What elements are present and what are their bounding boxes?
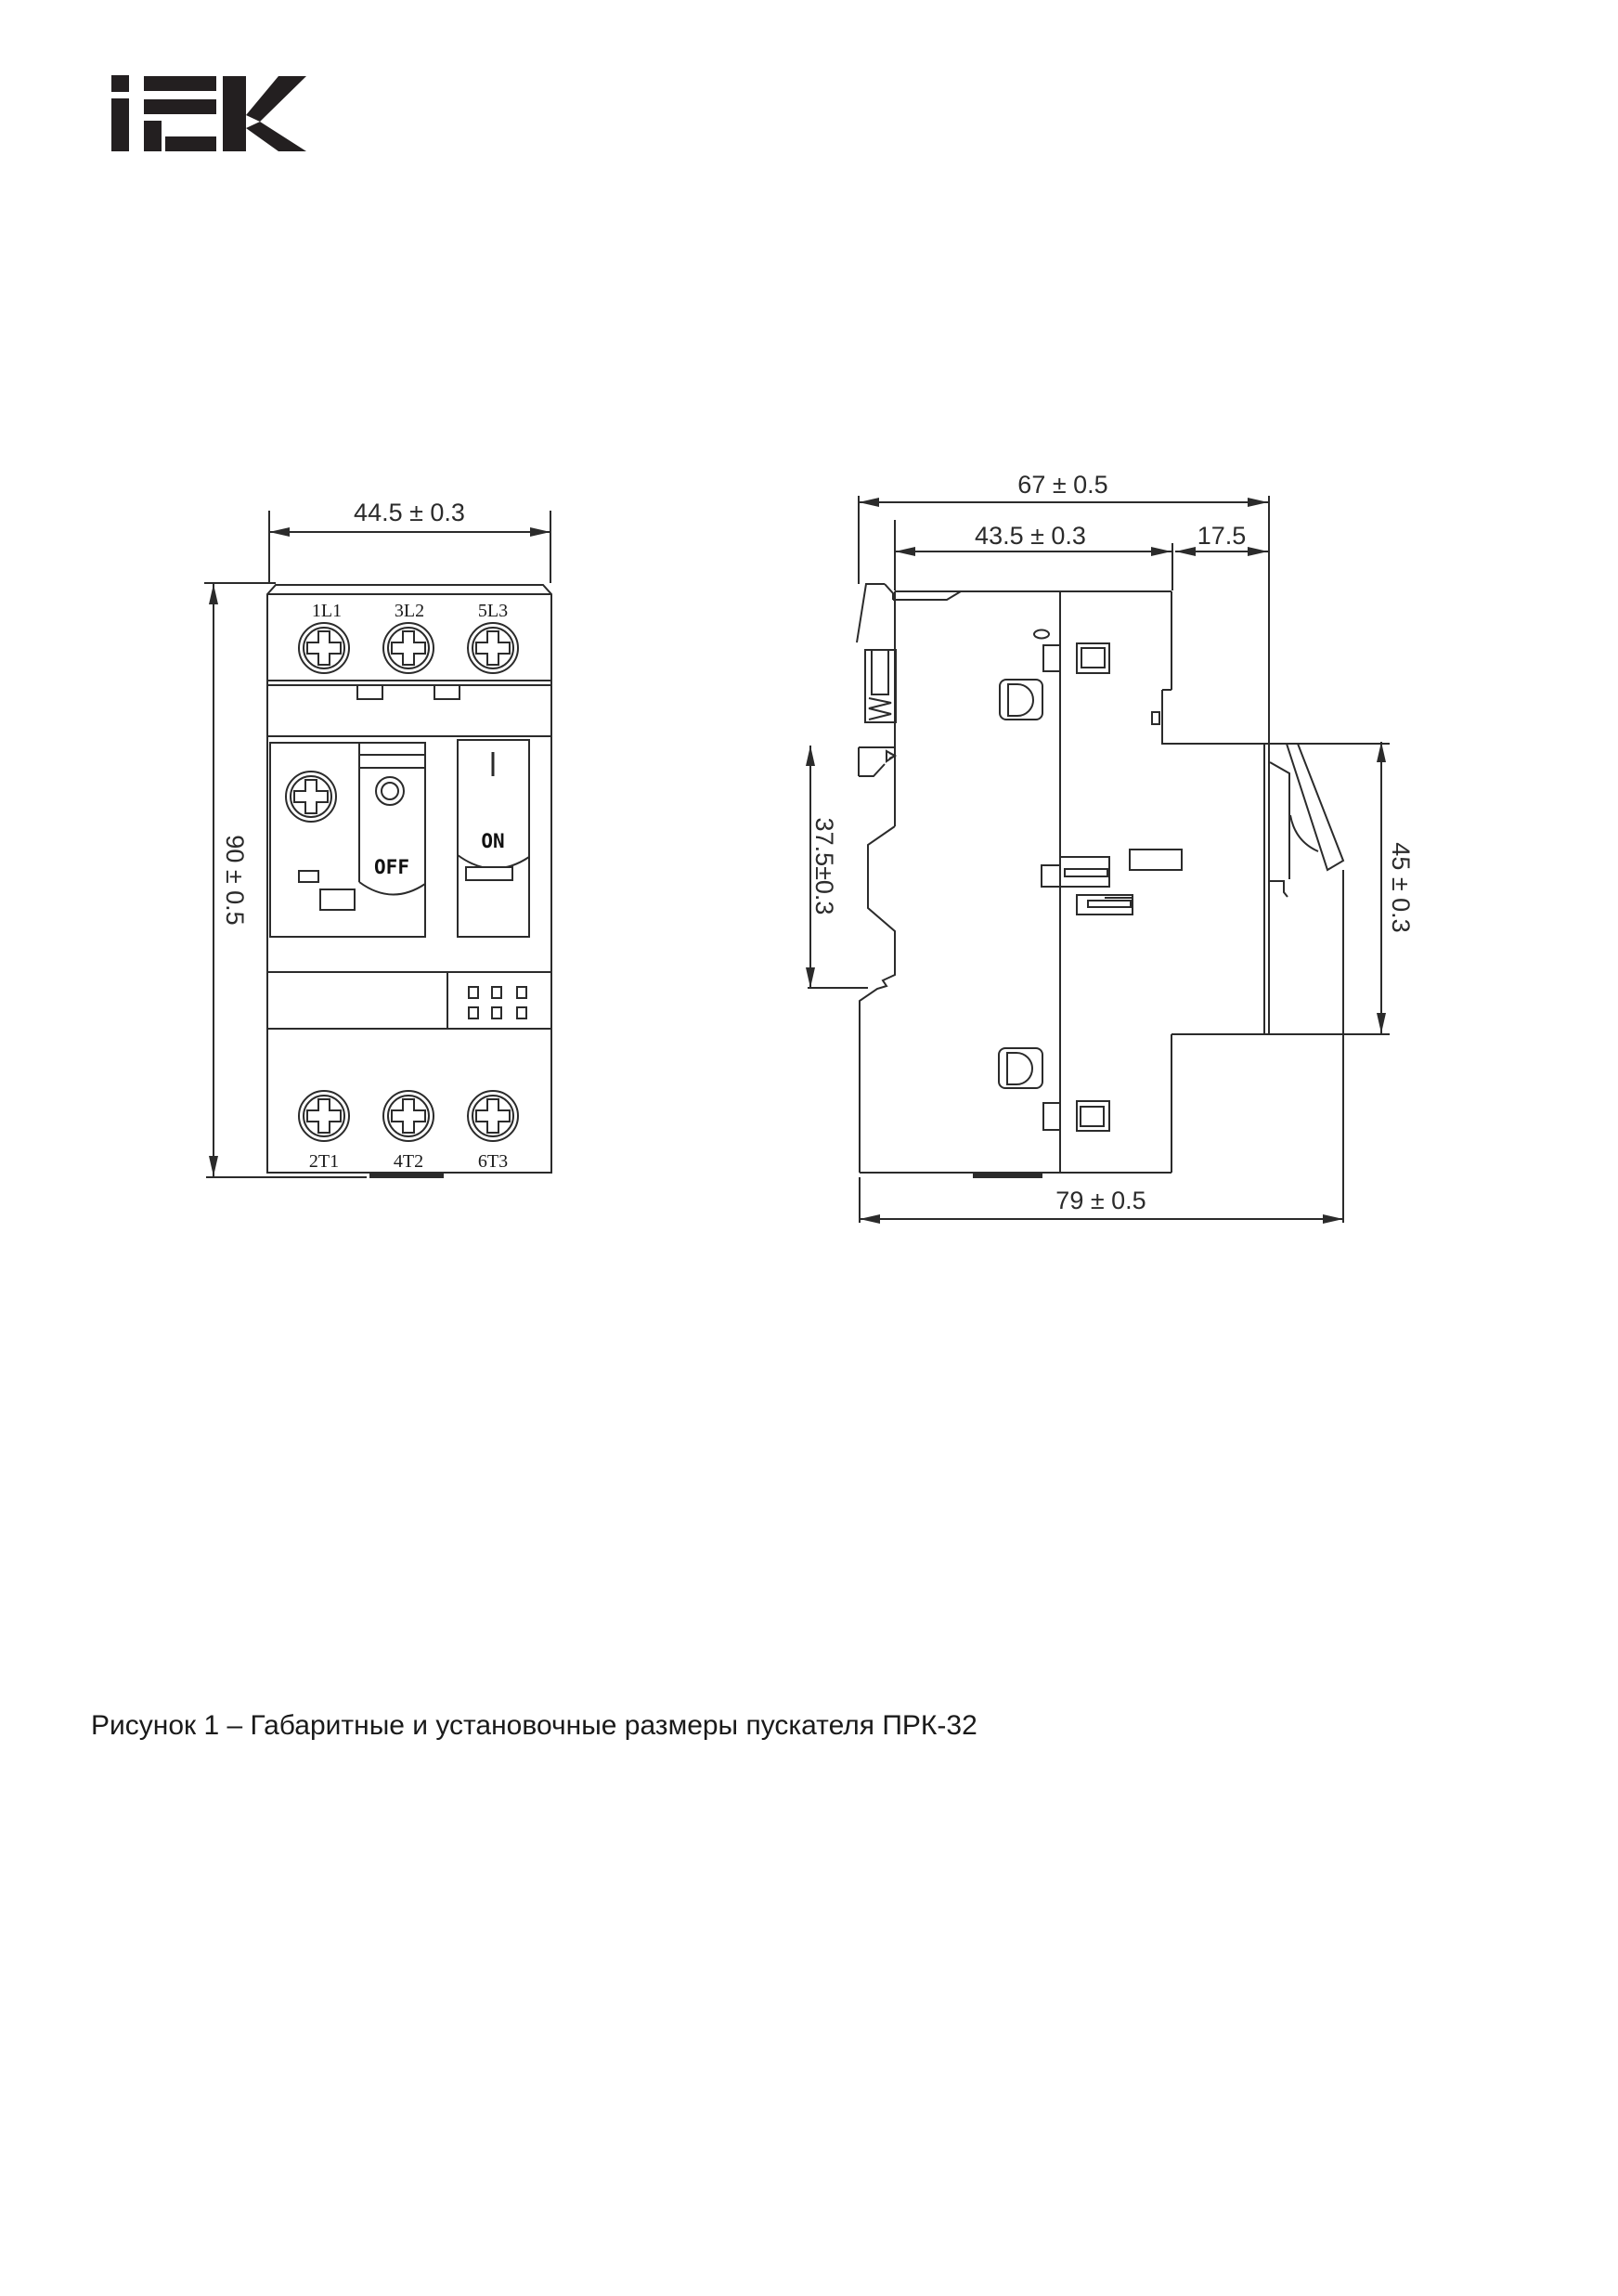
iek-logo	[111, 75, 306, 151]
screw-4T2	[383, 1091, 434, 1141]
side-view-body	[857, 584, 1390, 1178]
side-front-height-dimension: 45 ± 0.3	[1387, 842, 1415, 932]
terminal-label: 1L1	[312, 601, 342, 621]
test-button-circle	[376, 777, 404, 805]
foot	[973, 1173, 1042, 1178]
front-view-body	[267, 585, 551, 1178]
front-height-dimension: 90 ± 0.5	[221, 835, 249, 925]
side-front-depth-dimension: 17.5	[1197, 522, 1247, 550]
terminal-label: 2T1	[309, 1151, 339, 1172]
terminal-label: 3L2	[395, 601, 424, 621]
front-view: 1L1 3L2 5L3 2T1 4T2 6T3 OFF ON 44.5 ± 0.…	[204, 499, 551, 1178]
din-tab	[369, 1173, 444, 1178]
terminal-label: 6T3	[478, 1151, 508, 1172]
toggle-lever	[1287, 744, 1343, 870]
figure-caption: Рисунок 1 – Габаритные и установочные ра…	[91, 1710, 977, 1741]
side-view: 67 ± 0.5 43.5 ± 0.3 17.5 37.5±0.3 45 ± 0…	[806, 471, 1415, 1224]
adjustment-screw	[286, 772, 336, 822]
side-back-height-dimension: 37.5±0.3	[810, 818, 838, 915]
side-total-depth-dimension: 67 ± 0.5	[1017, 471, 1107, 499]
side-body-depth-dimension: 43.5 ± 0.3	[975, 522, 1086, 550]
front-width-dimension: 44.5 ± 0.3	[354, 499, 465, 526]
screw-6T3	[468, 1091, 518, 1141]
screw-2T1	[299, 1091, 349, 1141]
side-total-length-dimension: 79 ± 0.5	[1055, 1187, 1146, 1214]
terminal-label: 5L3	[478, 601, 508, 621]
screw-5L3	[468, 623, 518, 673]
side-view-dimension-lines	[806, 496, 1386, 1224]
screw-1L1	[299, 623, 349, 673]
off-button-label: OFF	[374, 856, 409, 878]
terminal-label: 4T2	[394, 1151, 423, 1172]
document-page: 1L1 3L2 5L3 2T1 4T2 6T3 OFF ON 44.5 ± 0.…	[0, 0, 1618, 2296]
on-button-label: ON	[481, 830, 504, 852]
technical-drawing: 1L1 3L2 5L3 2T1 4T2 6T3 OFF ON 44.5 ± 0.…	[0, 0, 1618, 2296]
screw-3L2	[383, 623, 434, 673]
